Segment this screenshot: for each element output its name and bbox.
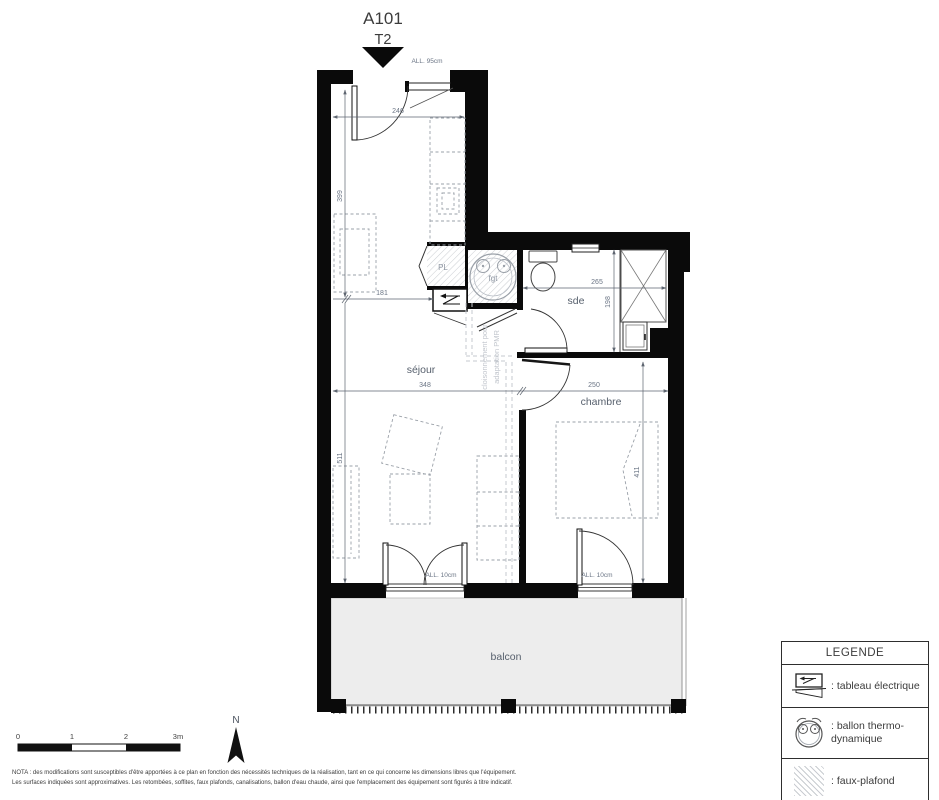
scale-bar: 0 1 2 3m xyxy=(16,732,183,751)
sde-door xyxy=(525,309,567,353)
legend-item-electrical-panel: : tableau électrique xyxy=(782,665,928,707)
chambre-door-sill-label: ALL. 10cm xyxy=(581,572,612,579)
north-arrow-icon: N xyxy=(228,715,245,763)
unit-number: A101 xyxy=(363,9,403,28)
toilet-icon xyxy=(529,251,557,291)
dim-entry-clear: 181 xyxy=(376,290,388,297)
room-label-sde: sde xyxy=(568,295,585,307)
closet-pivot-door xyxy=(419,246,427,286)
dim-sde-width: 265 xyxy=(591,279,603,286)
pmr-partition xyxy=(466,303,512,583)
label-water-heater: fgt xyxy=(489,274,499,283)
chambre-balcony-threshold xyxy=(578,584,632,591)
sofa xyxy=(333,466,359,558)
electrical-panel-legend-icon xyxy=(787,672,831,700)
scale-tick-0: 0 xyxy=(16,732,20,741)
sejour-balcony-threshold xyxy=(386,584,464,591)
sideboard xyxy=(477,456,519,560)
windows xyxy=(386,81,632,591)
unit-type: T2 xyxy=(375,32,392,48)
scale-tick-1: 1 xyxy=(70,732,74,741)
dim-entry-length: 399 xyxy=(337,190,344,202)
north-label: N xyxy=(232,715,239,726)
scale-tick-3: 3m xyxy=(173,732,183,741)
legend-label-heater-line1: : ballon thermo- xyxy=(831,720,904,732)
dim-chambre-width: 250 xyxy=(588,382,600,389)
entrance-marker-icon xyxy=(362,47,404,68)
dim-sde-length: 198 xyxy=(605,296,612,308)
room-label-sejour: séjour xyxy=(407,364,436,376)
legend-item-water-heater: : ballon thermo- dynamique xyxy=(782,707,928,758)
kitchen-unit xyxy=(334,214,376,292)
entry-window xyxy=(405,81,455,108)
kitchen-counter xyxy=(430,118,465,245)
dim-sejour-length: 511 xyxy=(337,452,344,463)
room-label-chambre: chambre xyxy=(581,396,622,408)
dim-sejour-width: 348 xyxy=(419,382,431,389)
legend-title: LEGENDE xyxy=(782,642,928,665)
dim-entry-width: 246 xyxy=(392,108,404,115)
legend-label-electrical: : tableau électrique xyxy=(831,680,920,693)
sde-cabinet-icon xyxy=(623,322,647,350)
pmr-note-line2: adaptation PMR xyxy=(492,330,501,384)
chambre-door xyxy=(522,360,570,410)
label-closet: PL xyxy=(438,263,448,272)
legend-label-heater: : ballon thermo- dynamique xyxy=(831,720,904,745)
room-label-balcon: balcon xyxy=(491,651,522,663)
entry-sill-label: ALL. 95cm xyxy=(411,58,442,65)
sde-window xyxy=(572,244,599,252)
dim-chambre-length: 411 xyxy=(634,466,641,477)
nota-line-1: NOTA : des modifications sont susceptibl… xyxy=(12,769,922,779)
nota-text: NOTA : des modifications sont susceptibl… xyxy=(12,769,922,788)
scale-tick-2: 2 xyxy=(124,732,128,741)
table xyxy=(382,415,443,476)
pmr-note-line1: cloisonnement pour xyxy=(480,324,489,390)
water-heater-legend-icon xyxy=(787,716,831,750)
nota-line-2: Les surfaces indiquées sont approximativ… xyxy=(12,779,922,789)
kitchen-sink xyxy=(437,188,459,214)
plan-title: A101 T2 xyxy=(362,9,404,68)
legend-label-heater-line2: dynamique xyxy=(831,733,882,745)
low-table xyxy=(390,474,430,524)
floor-plan-page: cloisonnement pour adaptation PMR 246 39… xyxy=(0,0,939,800)
electrical-panel-icon xyxy=(433,289,467,325)
sejour-door-sill-label: ALL. 10cm xyxy=(425,572,456,579)
